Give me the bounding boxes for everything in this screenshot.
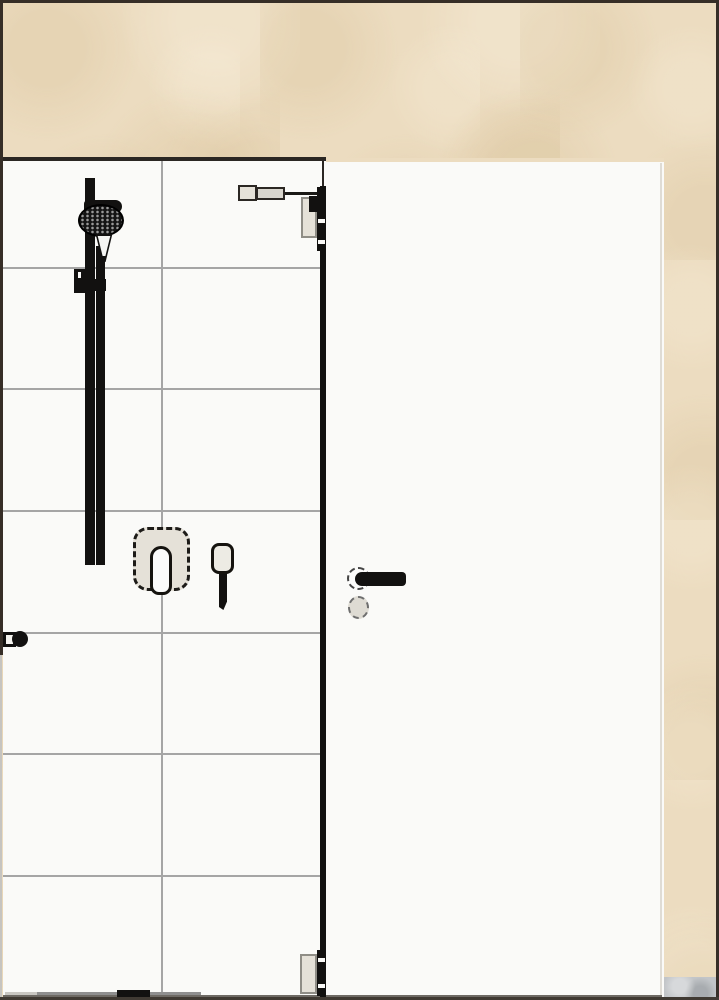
glass-panel-edge [320,186,326,1000]
shower-hose [96,246,105,565]
glass-panel-top-seam [322,161,324,189]
tile-joint-horizontal [3,388,320,390]
bottom-glass-clamp [317,950,326,996]
stabilizer-arm-connector [238,185,257,201]
frame-border-left [0,0,3,655]
door-handle-lever[interactable] [355,572,406,586]
tile-joint-horizontal [3,510,320,512]
frame-border-top [0,0,719,3]
tiled-wall-top-edge [0,157,326,161]
shower-enclosure-elevation [0,0,719,1000]
clamp-notch [318,958,325,962]
hand-shower-holder-stem [219,572,227,610]
tile-joint-horizontal [3,753,320,755]
door-key-rosette[interactable] [348,596,369,619]
mixer-lever[interactable] [150,546,172,595]
frame-border-left-lower [0,655,2,1000]
clamp-notch [318,240,325,244]
stabilizer-arm-sleeve [256,187,285,200]
tile-joint-horizontal [3,632,320,634]
baseboard-segment-dark [117,990,150,997]
hand-shower-head[interactable] [78,204,124,237]
clamp-notch [318,984,325,988]
clamp-notch [318,219,325,223]
bottom-wall-bracket-plate [300,954,317,994]
rail-bracket-junction [75,279,106,291]
left-support-knob [12,631,28,647]
tile-joint-horizontal [3,267,320,269]
wall-over-door-strip [326,158,664,162]
tile-joint-horizontal [3,875,320,877]
hand-shower-holder-plate[interactable] [211,543,234,574]
door-right-edge-line [660,163,662,995]
rail-bracket-slit [78,272,81,278]
baseboard-segment-light [5,992,39,995]
